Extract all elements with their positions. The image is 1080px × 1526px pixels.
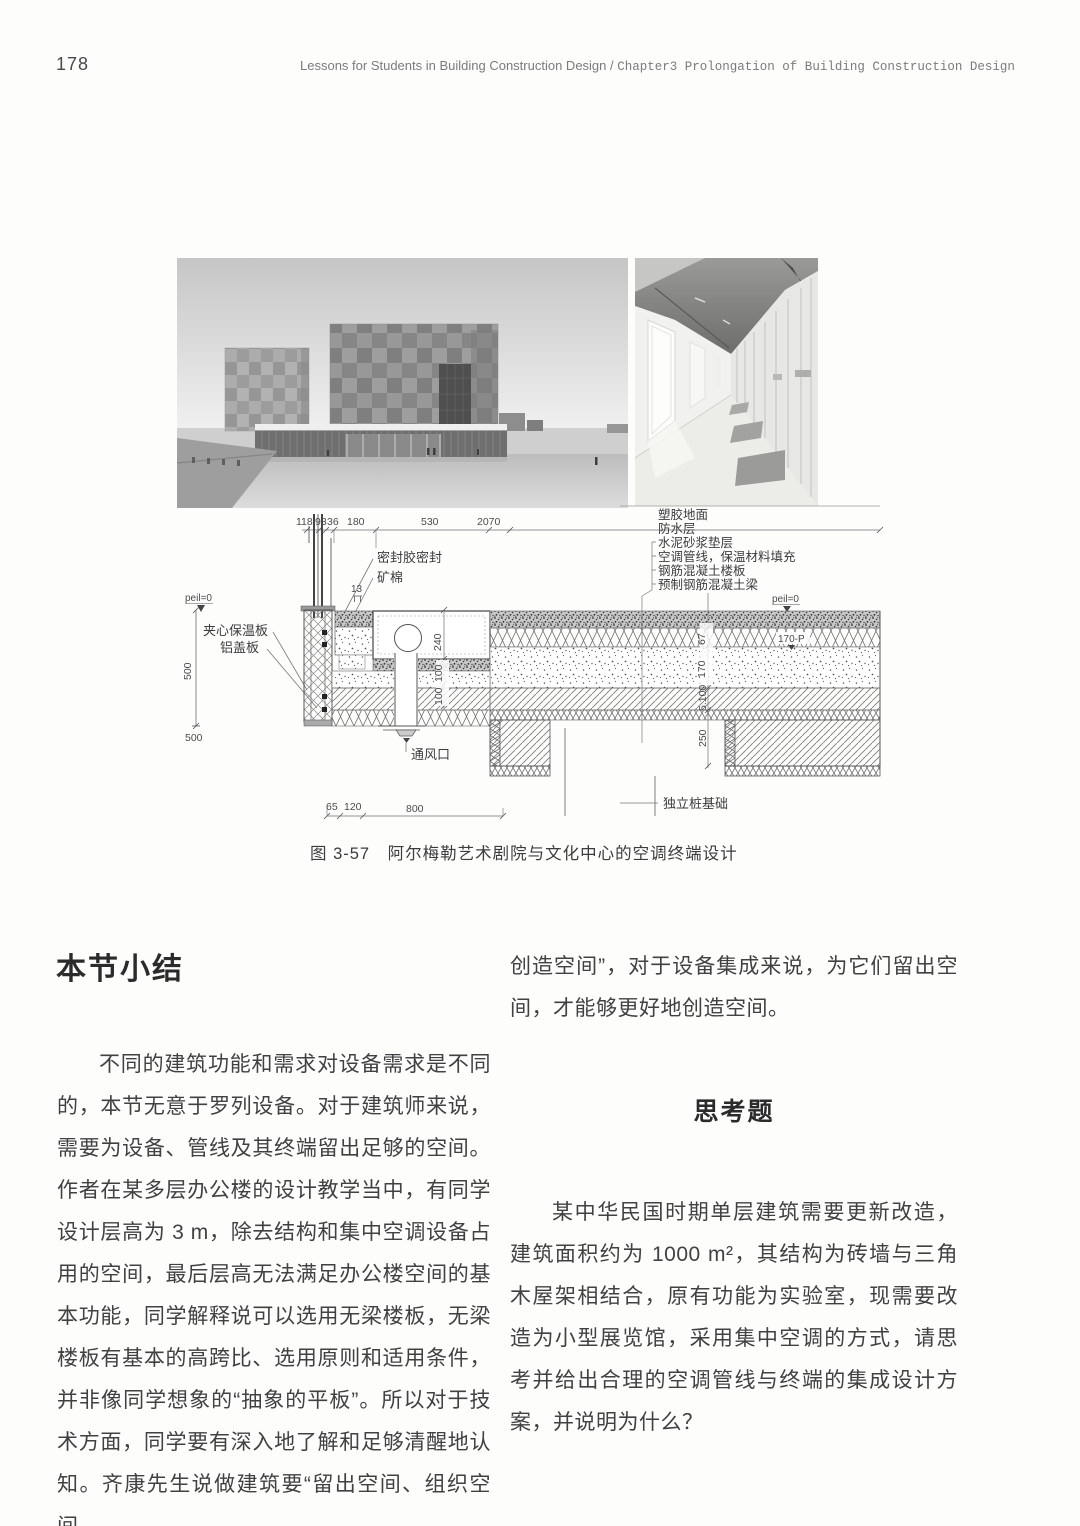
aluminum-cover-label: 铝盖板 [220, 640, 259, 655]
layer-label-waterproof: 防水层 [658, 521, 696, 536]
left-level-and-dims: peil=0 500 500 [182, 593, 213, 744]
glass-pavilion [255, 424, 507, 462]
dim-65: 65 [326, 801, 338, 813]
layer-label-ac-pipes: 空调管线，保温材料填充 [658, 549, 796, 564]
left-cube-building [225, 348, 309, 431]
dim-13: 13 [351, 584, 363, 595]
layer-label-rubber-floor: 塑胶地面 [658, 507, 708, 522]
dim-120: 120 [344, 801, 362, 813]
dim-240: 240 [432, 633, 444, 651]
running-header: Lessons for Students in Building Constru… [300, 58, 960, 74]
level-170-label: 170-P [778, 634, 805, 645]
section-heading-summary: 本节小结 [56, 944, 184, 988]
dim-100a: 100 [433, 664, 445, 682]
vent-label: 通风口 [411, 747, 450, 762]
running-header-separator: / [610, 58, 614, 73]
dim-250: 250 [697, 729, 709, 747]
running-header-chapter: Chapter3 Prolongation of Building Constr… [617, 60, 1015, 74]
duct-circle [395, 625, 422, 652]
dim-500-bottom: 500 [185, 732, 203, 744]
dim-67: 67 [696, 633, 708, 645]
exterior-photo [177, 258, 628, 508]
running-header-book: Lessons for Students in Building Constru… [300, 58, 606, 73]
mineral-wool-label: 矿棉 [377, 570, 403, 585]
dim-170: 170 [696, 660, 708, 678]
foundation-blocks [490, 720, 880, 776]
top-dimension-values: 118 93 36 180 530 2070 [296, 516, 501, 528]
right-cube-building [330, 324, 498, 431]
corridor-photo [635, 258, 818, 506]
dim-100b: 100 [433, 687, 445, 705]
summary-continuation: 创造空间”，对于设备集成来说，为它们留出空间，才能够更好地创造空间。 [510, 946, 958, 1030]
peil-right-label: peil=0 [772, 594, 799, 605]
sealant-label: 密封胶密封 [377, 550, 442, 565]
dim-530: 530 [421, 516, 439, 528]
sandwich-panel-label: 夹心保温板 [203, 623, 268, 638]
section-heading-questions: 思考题 [510, 1092, 958, 1128]
dim-500-vertical: 500 [182, 662, 194, 680]
page-number: 178 [56, 54, 89, 75]
dim-2070: 2070 [477, 516, 501, 528]
dim-5100: 5.100 [697, 685, 709, 711]
dim-800: 800 [406, 803, 424, 815]
top-dimension-line [302, 506, 883, 548]
summary-paragraph: 不同的建筑功能和需求对设备需求是不同的，本节无意于罗列设备。对于建筑师来说，需要… [57, 1044, 491, 1526]
section-drawing: 118 93 36 180 530 2070 密封胶密封 矿棉 13 peil=… [165, 498, 905, 830]
layer-label-precast-beam: 预制钢筋混凝土梁 [658, 577, 759, 592]
questions-paragraph: 某中华民国时期单层建筑需要更新改造，建筑面积约为 1000 m²，其结构为砖墙与… [510, 1192, 958, 1444]
pile-foundation-label: 独立桩基础 [663, 796, 728, 811]
left-annotations: 夹心保温板 铝盖板 [203, 623, 317, 708]
dim-180: 180 [347, 516, 365, 528]
window-mullion [309, 514, 331, 618]
layer-label-mortar: 水泥砂浆垫层 [658, 535, 733, 550]
dim-93: 93 [315, 516, 327, 528]
bottom-dimension-line: 65 120 800 [324, 801, 506, 819]
dim-118: 118 [296, 516, 313, 528]
peil-left-label: peil=0 [185, 593, 212, 604]
layer-label-rc-slab: 钢筋混凝土楼板 [658, 563, 746, 578]
figure-caption: 图 3-57 阿尔梅勒艺术剧院与文化中心的空调终端设计 [310, 840, 738, 864]
book-page: 178 Lessons for Students in Building Con… [0, 0, 1080, 1526]
dim-36: 36 [327, 516, 339, 528]
